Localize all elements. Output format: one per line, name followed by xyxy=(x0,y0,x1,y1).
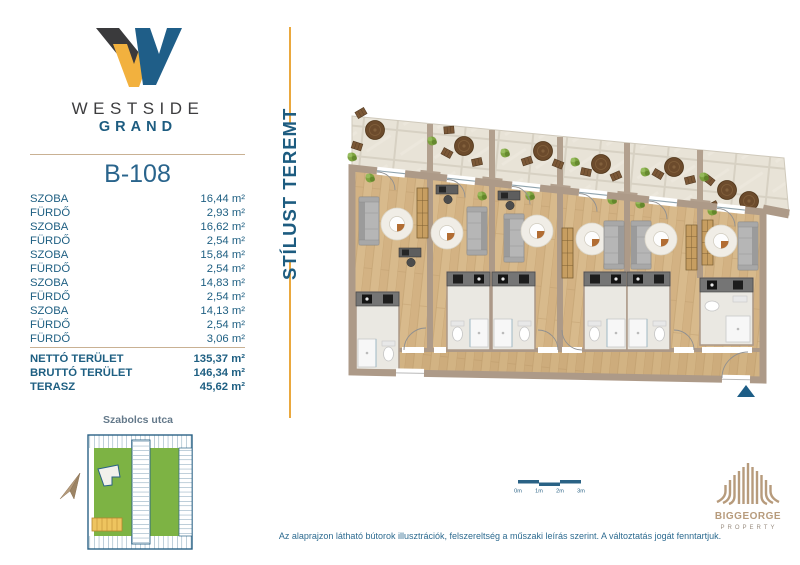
area-row: FÜRDŐ2,93 m² xyxy=(30,206,245,220)
scale-tick-label: 3m xyxy=(577,489,585,495)
area-row: SZOBA16,62 m² xyxy=(30,220,245,234)
unit-id: B-108 xyxy=(30,160,245,189)
room-label: SZOBA xyxy=(30,220,68,234)
area-row: SZOBA16,44 m² xyxy=(30,192,245,206)
brand-name: WESTSIDE xyxy=(40,99,236,119)
room-label: SZOBA xyxy=(30,304,68,318)
room-area-list: SZOBA16,44 m² FÜRDŐ2,93 m² SZOBA16,62 m²… xyxy=(30,192,245,346)
room-area: 14,83 m² xyxy=(200,276,245,290)
room-area: 2,54 m² xyxy=(207,318,245,332)
area-row: SZOBA15,84 m² xyxy=(30,248,245,262)
area-row: FÜRDŐ3,06 m² xyxy=(30,332,245,346)
area-row: FÜRDŐ2,54 m² xyxy=(30,290,245,304)
room-label: FÜRDŐ xyxy=(30,262,70,276)
area-row: FÜRDŐ2,54 m² xyxy=(30,234,245,248)
room-label: SZOBA xyxy=(30,192,68,206)
brand-subname: GRAND xyxy=(40,119,236,135)
biggeorge-logo-icon: BIGGEORGE PROPERTY xyxy=(703,458,793,538)
totals-list: NETTÓ TERÜLET135,37 m² BRUTTÓ TERÜLET146… xyxy=(30,352,245,394)
total-row: BRUTTÓ TERÜLET146,34 m² xyxy=(30,366,245,380)
westside-logo-icon xyxy=(93,28,183,89)
total-area: 45,62 m² xyxy=(200,380,245,394)
scale-tick-label: 2m xyxy=(556,489,564,495)
scale-tick-label: 0m xyxy=(514,489,522,495)
room-label: SZOBA xyxy=(30,276,68,290)
room-area: 2,54 m² xyxy=(207,262,245,276)
room-area: 2,93 m² xyxy=(207,206,245,220)
site-minimap xyxy=(85,432,195,552)
room-area: 2,54 m² xyxy=(207,234,245,248)
developer-division: PROPERTY xyxy=(721,525,778,531)
area-row: SZOBA14,13 m² xyxy=(30,304,245,318)
room-area: 14,13 m² xyxy=(200,304,245,318)
room-label: FÜRDŐ xyxy=(30,206,70,220)
divider xyxy=(30,347,245,348)
total-area: 135,37 m² xyxy=(194,352,246,366)
total-label: NETTÓ TERÜLET xyxy=(30,352,124,366)
total-row: TERASZ45,62 m² xyxy=(30,380,245,394)
room-area: 15,84 m² xyxy=(200,248,245,262)
developer-name: BIGGEORGE xyxy=(715,511,781,522)
disclaimer-text: Az alaprajzon látható bútorok illusztrác… xyxy=(250,531,750,541)
unit-highlight xyxy=(92,518,122,531)
wall-stub xyxy=(763,209,789,214)
total-area: 146,34 m² xyxy=(194,366,246,380)
compass-needle-icon xyxy=(58,470,84,502)
room-label: FÜRDŐ xyxy=(30,234,70,248)
total-label: BRUTTÓ TERÜLET xyxy=(30,366,132,380)
total-row: NETTÓ TERÜLET135,37 m² xyxy=(30,352,245,366)
tagline-rule-bottom xyxy=(289,262,291,418)
area-row: FÜRDŐ2,54 m² xyxy=(30,318,245,332)
room-area: 16,44 m² xyxy=(200,192,245,206)
room-area: 16,62 m² xyxy=(200,220,245,234)
street-label: Szabolcs utca xyxy=(40,414,236,426)
room-label: FÜRDŐ xyxy=(30,290,70,304)
scale-tick-label: 1m xyxy=(535,489,543,495)
scale-bar: 0m 1m 2m 3m xyxy=(506,476,596,498)
room-label: SZOBA xyxy=(30,248,68,262)
room-label: FÜRDŐ xyxy=(30,318,70,332)
divider xyxy=(30,154,245,155)
room-area: 2,54 m² xyxy=(207,290,245,304)
entrance-arrow-icon xyxy=(737,385,755,397)
bathroom-6 xyxy=(700,278,753,345)
room-area: 3,06 m² xyxy=(207,332,245,346)
room-label: FÜRDŐ xyxy=(30,332,70,346)
floor-plan xyxy=(340,98,800,408)
area-row: SZOBA14,83 m² xyxy=(30,276,245,290)
total-label: TERASZ xyxy=(30,380,75,394)
tagline: STÍLUST TEREMT xyxy=(275,124,305,264)
area-row: FÜRDŐ2,54 m² xyxy=(30,262,245,276)
